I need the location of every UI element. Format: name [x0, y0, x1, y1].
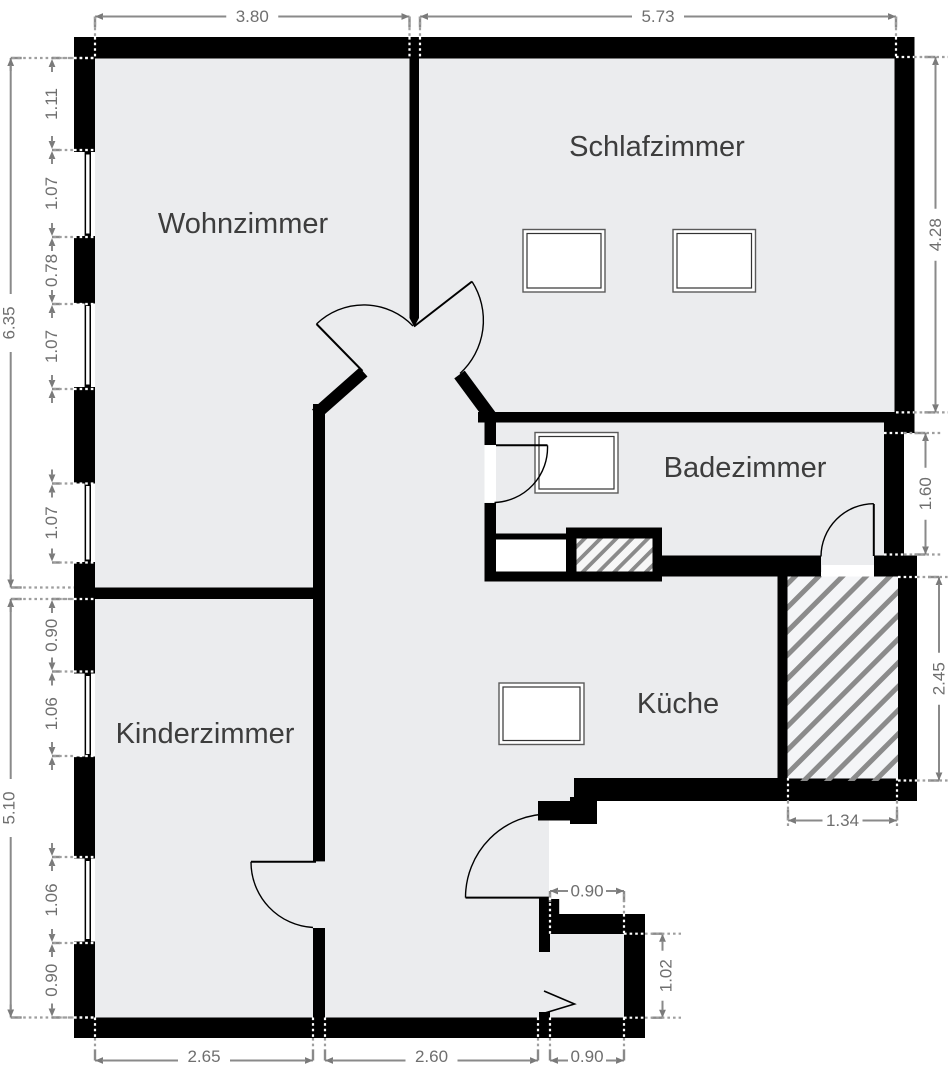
svg-text:5.10: 5.10 [0, 791, 19, 824]
svg-text:0.90: 0.90 [570, 1047, 603, 1066]
svg-text:1.02: 1.02 [657, 959, 676, 992]
svg-text:4.28: 4.28 [926, 218, 945, 251]
svg-text:Küche: Küche [637, 688, 719, 720]
svg-text:0.90: 0.90 [42, 619, 61, 652]
svg-text:Schlafzimmer: Schlafzimmer [569, 131, 745, 163]
svg-text:1.06: 1.06 [42, 697, 61, 730]
svg-text:1.07: 1.07 [42, 506, 61, 539]
svg-text:6.35: 6.35 [0, 306, 19, 339]
svg-text:2.45: 2.45 [930, 662, 949, 695]
svg-text:5.73: 5.73 [641, 7, 674, 26]
svg-text:2.65: 2.65 [187, 1047, 220, 1066]
svg-text:1.60: 1.60 [916, 477, 935, 510]
svg-text:0.90: 0.90 [42, 964, 61, 997]
svg-text:0.90: 0.90 [570, 882, 603, 901]
svg-text:Kinderzimmer: Kinderzimmer [116, 718, 295, 750]
svg-text:1.07: 1.07 [42, 330, 61, 363]
svg-text:1.06: 1.06 [42, 883, 61, 916]
svg-text:Badezimmer: Badezimmer [664, 452, 827, 484]
svg-text:1.34: 1.34 [826, 811, 859, 830]
svg-text:Wohnzimmer: Wohnzimmer [158, 208, 329, 240]
svg-text:1.07: 1.07 [42, 177, 61, 210]
svg-text:3.80: 3.80 [236, 7, 269, 26]
svg-text:0.78: 0.78 [42, 254, 61, 287]
svg-text:1.11: 1.11 [42, 88, 61, 120]
svg-text:2.60: 2.60 [415, 1047, 448, 1066]
